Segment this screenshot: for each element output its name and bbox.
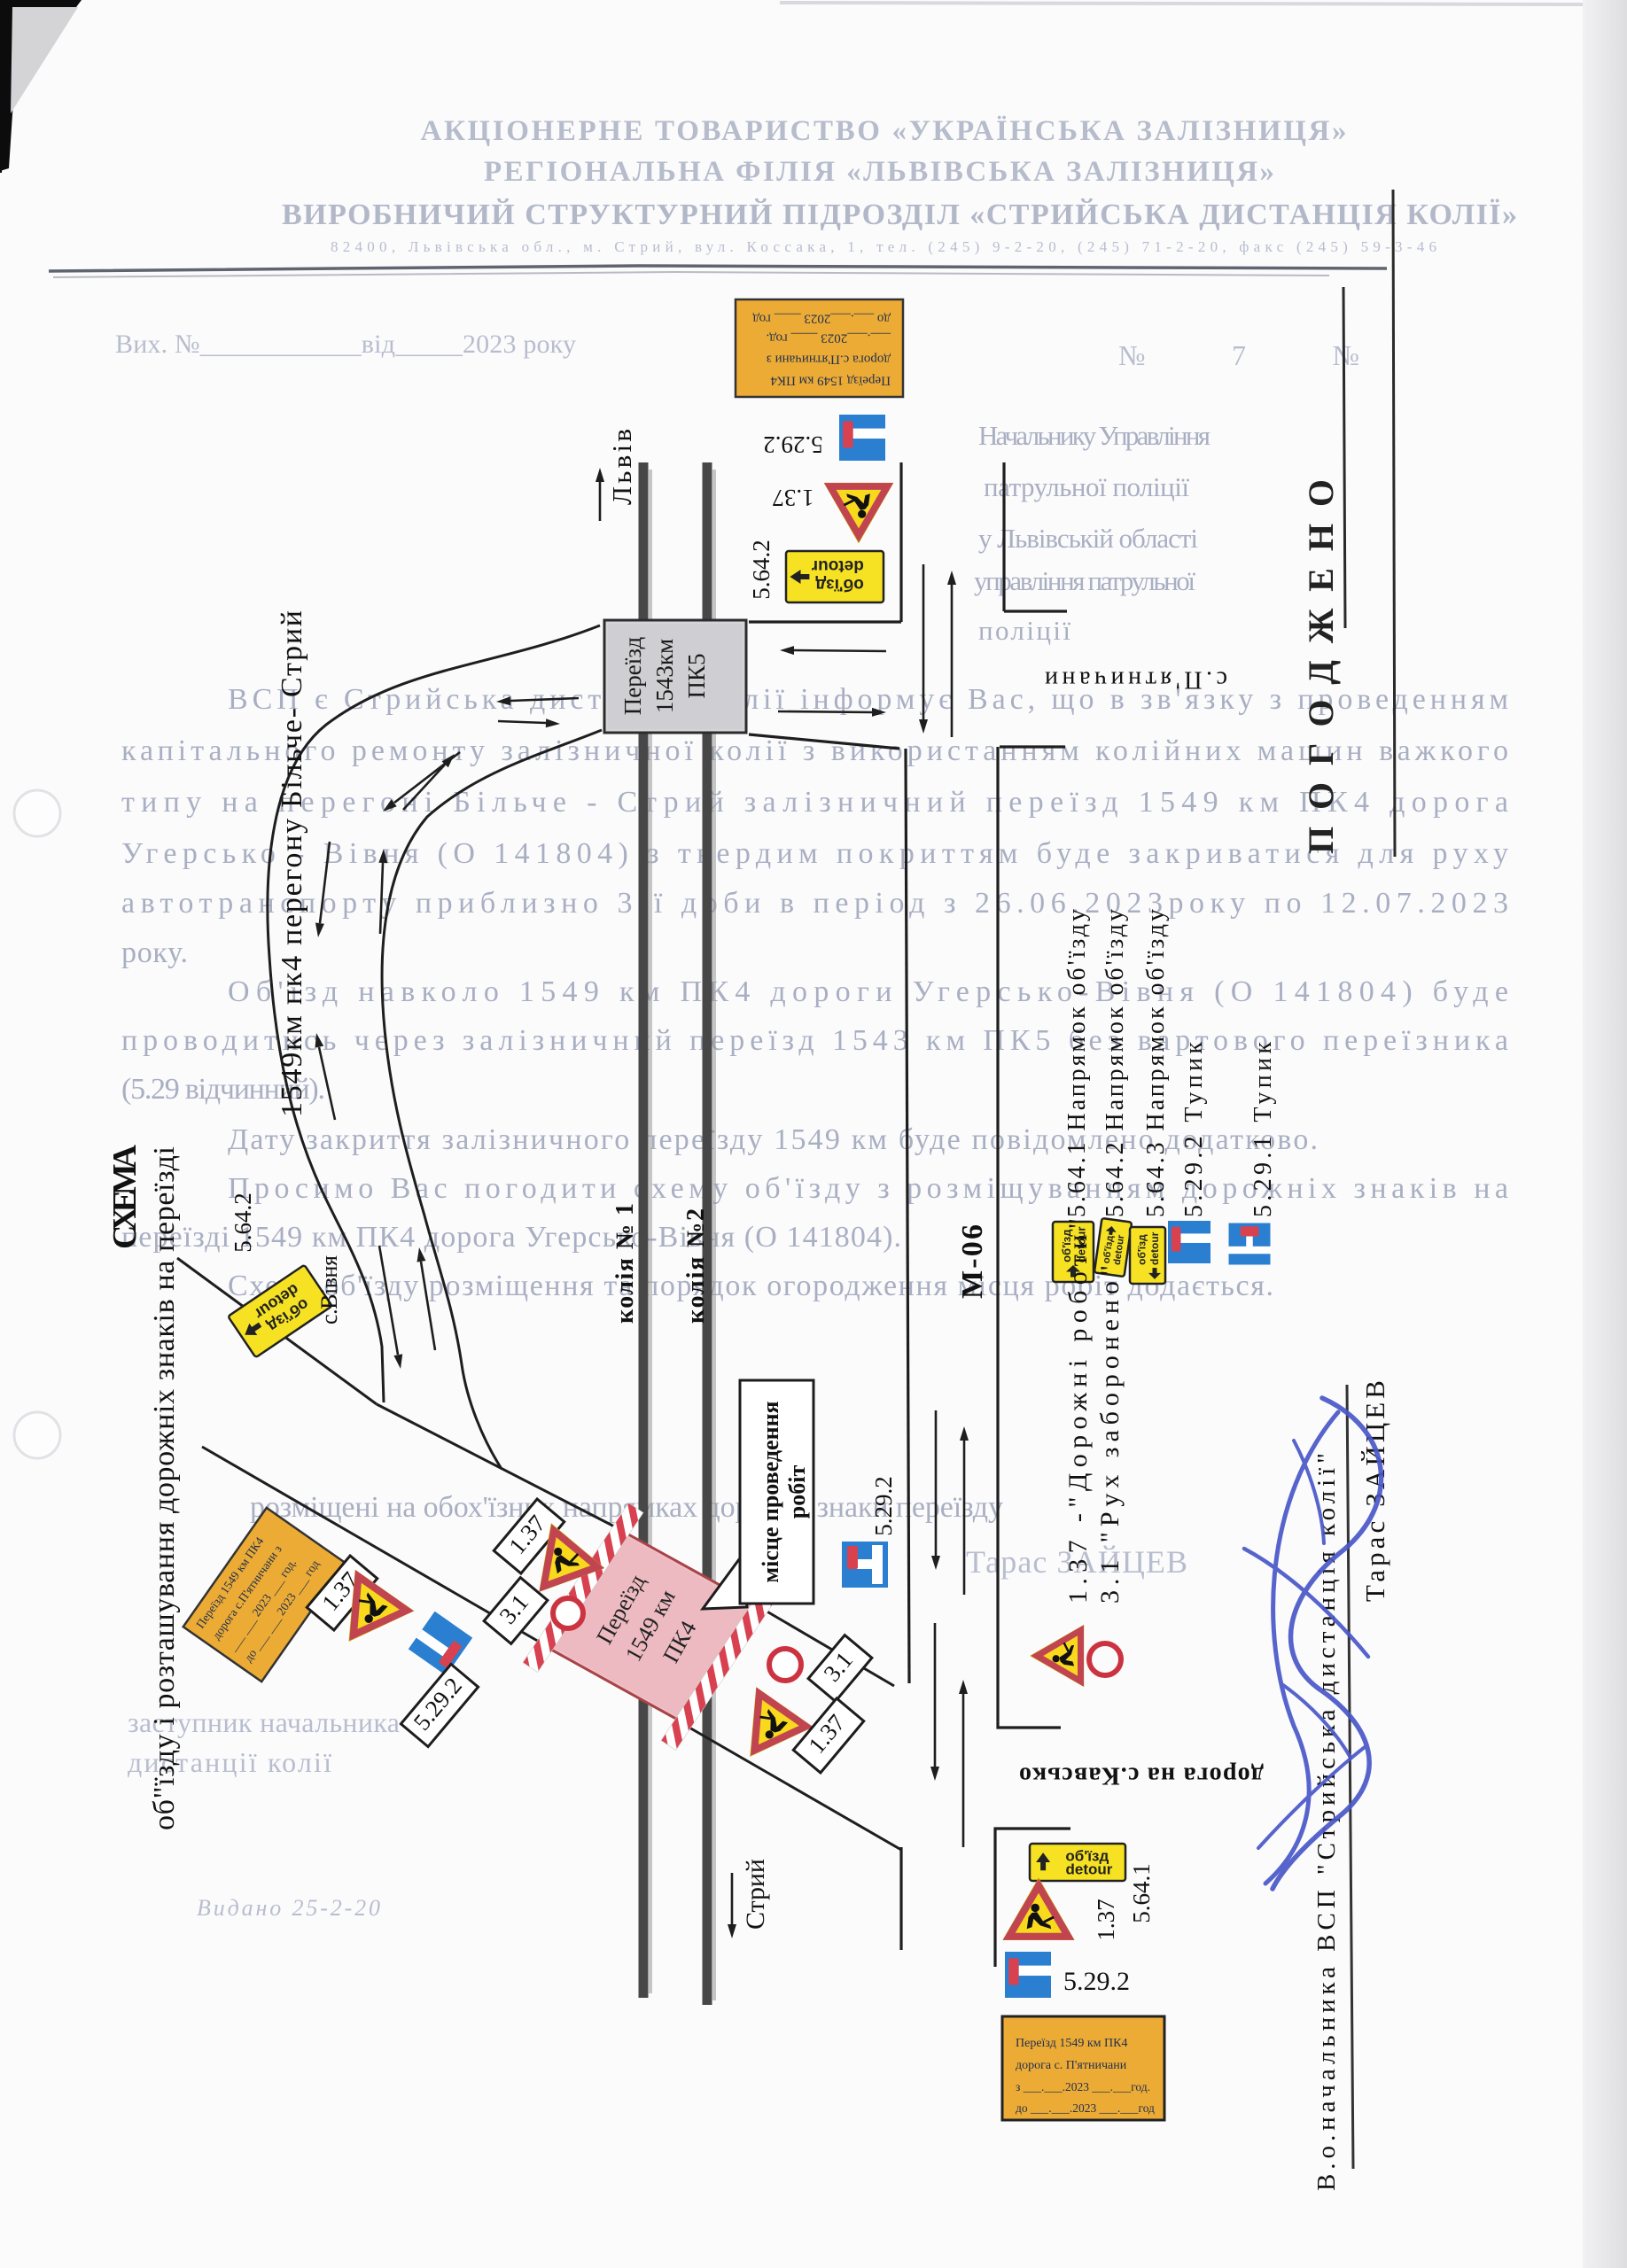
svg-text:5.64.2 Напрямок об'їзду: 5.64.2 Напрямок об'їзду	[1102, 909, 1129, 1217]
svg-text:Переїзд 1549 км ПК4: Переїзд 1549 км ПК4	[1016, 2037, 1127, 2050]
svg-text:Вих. №____________від_____202: Вих. №____________від_____2023 року	[115, 330, 576, 359]
svg-text:с.П'ятничани: с.П'ятничани	[1045, 666, 1227, 694]
svg-text:управління патрульної: управління патрульної	[974, 565, 1195, 596]
svg-text:колія №2: колія №2	[682, 1208, 710, 1324]
svg-text:автотранспорту приблизно 3-ї: автотранспорту приблизно 3-ї доби в пері…	[121, 887, 1508, 920]
svg-text:1.37: 1.37	[1093, 1899, 1119, 1940]
svg-text:СХЕМА: СХЕМА	[106, 1143, 144, 1249]
svg-text:патрульної поліції: патрульної поліції	[984, 471, 1189, 502]
svg-text:ПК5: ПК5	[683, 653, 710, 698]
svg-text:5.29.2: 5.29.2	[870, 1476, 897, 1536]
svg-text:М-06: М-06	[956, 1224, 989, 1299]
svg-text:до ___.___.2023 ___.___год: до ___.___.2023 ___.___год	[1016, 2101, 1155, 2115]
svg-text:Начальнику Управління: Начальнику Управління	[978, 420, 1211, 451]
svg-text:до ___.___2023 ____ год: до ___.___2023 ____ год	[752, 312, 891, 326]
svg-text:Стрий: Стрий	[741, 1859, 770, 1930]
svg-text:Львів: Львів	[606, 429, 637, 505]
svg-text:detour: detour	[1148, 1231, 1161, 1265]
svg-text:РЕГІОНАЛЬНА ФІЛІЯ «ЛЬВІВСЬКА З: РЕГІОНАЛЬНА ФІЛІЯ «ЛЬВІВСЬКА ЗАЛІЗНИЦЯ»	[484, 156, 1274, 188]
svg-text:дорога на с.Кавсько: дорога на с.Кавсько	[1019, 1762, 1264, 1790]
svg-text:року.: року.	[121, 936, 188, 969]
svg-text:5.64.2: 5.64.2	[230, 1192, 256, 1253]
svg-text:5.29.2 Тупик: 5.29.2 Тупик	[1180, 1042, 1208, 1217]
svg-text:82400, Львівська обл., м. Стри: 82400, Львівська обл., м. Стрий, вул. Ко…	[331, 238, 1436, 255]
svg-text:Тарас ЗАЙЦЕВ: Тарас ЗАЙЦЕВ	[1359, 1380, 1390, 1602]
svg-text:робіт: робіт	[784, 1465, 810, 1519]
svg-text:дорога с.П'ятничани з: дорога с.П'ятничани з	[767, 353, 891, 367]
svg-text:АКЦІОНЕРНЕ ТОВАРИСТВО «УКРАЇНС: АКЦІОНЕРНЕ ТОВАРИСТВО «УКРАЇНСЬКА ЗАЛІЗН…	[421, 115, 1347, 147]
svg-text:ВИРОБНИЧИЙ СТРУКТУРНИЙ ПІДРОЗД: ВИРОБНИЧИЙ СТРУКТУРНИЙ ПІДРОЗДІЛ «СТРИЙС…	[282, 198, 1517, 231]
svg-text:5.29.1 Тупик: 5.29.1 Тупик	[1249, 1042, 1277, 1217]
svg-text:5.29.2: 5.29.2	[763, 431, 823, 458]
svg-text:об"їзду і розташування дорожні: об"їзду і розташування дорожніх знаків н…	[148, 1146, 181, 1830]
svg-text:___.___2023 ____ год.: ___.___2023 ____ год.	[767, 331, 891, 346]
svg-text:об'їзд: об'їзд	[815, 575, 864, 594]
svg-text:1.37 -"Дорожні роботи": 1.37 -"Дорожні роботи"	[1063, 1218, 1093, 1604]
svg-text:Об'їзд навколо 1549 км ПК4 д: Об'їзд навколо 1549 км ПК4 дороги Угерсь…	[228, 975, 1508, 1008]
svg-text:3.1 "Рух заборонено": 3.1 "Рух заборонено"	[1095, 1265, 1125, 1604]
svg-text:5.29.2: 5.29.2	[1063, 1967, 1130, 1996]
svg-text:Переїзд 1549 км ПК4: Переїзд 1549 км ПК4	[770, 374, 891, 388]
svg-text:detour: detour	[1066, 1861, 1113, 1878]
svg-text:5.64.1: 5.64.1	[1128, 1863, 1155, 1923]
svg-text:з ___.___.2023 ___.___год.: з ___.___.2023 ___.___год.	[1016, 2080, 1150, 2093]
svg-text:5.64.1 Напрямок об'їзду: 5.64.1 Напрямок об'їзду	[1063, 909, 1091, 1217]
svg-text:Видано 25-2-20: Видано 25-2-20	[197, 1895, 380, 1921]
svg-text:5.64.3 Напрямок об'їзду: 5.64.3 Напрямок об'їзду	[1142, 909, 1170, 1217]
svg-text:колія № 1: колія № 1	[611, 1203, 639, 1324]
svg-text:1.37: 1.37	[772, 485, 813, 511]
svg-text:Переїзд: Переїзд	[619, 637, 646, 716]
svg-text:1543км: 1543км	[651, 639, 678, 713]
svg-text:місце проведення: місце проведення	[758, 1401, 783, 1582]
svg-text:detour: detour	[811, 556, 864, 575]
svg-text:проводитись через залізничний: проводитись через залізничний переїзд 15…	[121, 1024, 1508, 1057]
svg-text:об'їзд: об'їзд	[1136, 1234, 1148, 1265]
svg-text:поліції: поліції	[978, 615, 1070, 646]
svg-text:№ 7 №: № 7 №	[1118, 339, 1359, 371]
svg-text:дорога с. П'ятничани: дорога с. П'ятничани	[1016, 2059, 1127, 2072]
svg-text:ПОГОДЖЕНО: ПОГОДЖЕНО	[1301, 478, 1341, 854]
svg-text:у Львівській області: у Львівській області	[978, 523, 1198, 554]
svg-text:5.64.2: 5.64.2	[748, 540, 775, 600]
svg-text:1549км пк4 перегону Більче- Ст: 1549км пк4 перегону Більче- Стрий	[276, 610, 308, 1117]
svg-text:с.Вівня: с.Вівня	[316, 1255, 342, 1324]
